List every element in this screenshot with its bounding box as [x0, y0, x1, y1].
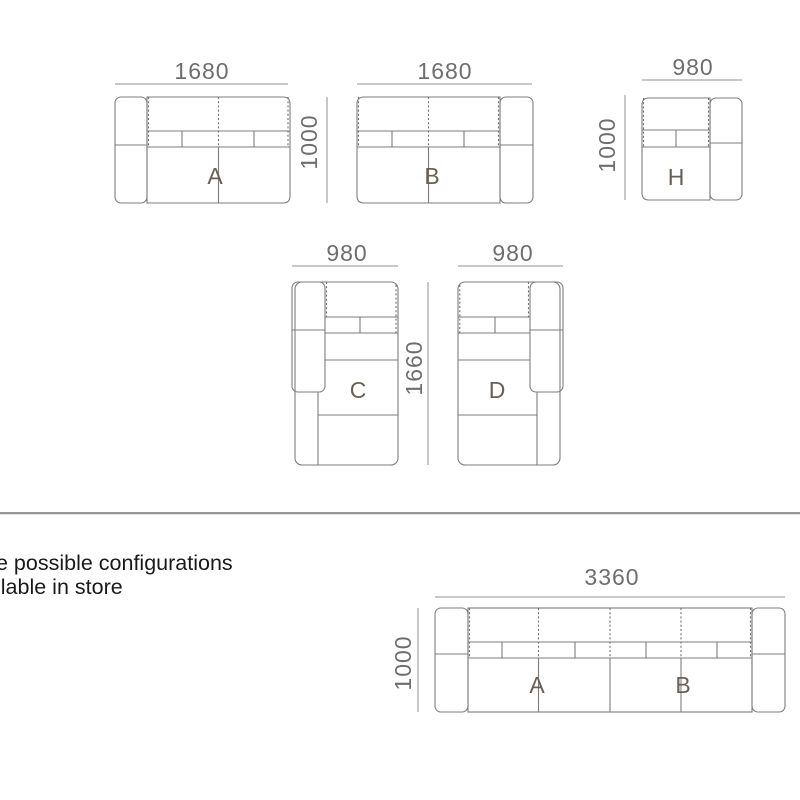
module-a-label: A [195, 163, 235, 189]
configuration-ab-sofa-outline [435, 608, 785, 712]
module-c-label: C [338, 377, 378, 403]
module-d-sofa-outline [458, 282, 563, 465]
sofa-body [458, 282, 560, 465]
module-c-sofa-outline [292, 282, 398, 465]
module-b-label: B [412, 163, 452, 189]
module-h-depth-dimension: 1000 [594, 85, 620, 205]
configuration-ab-seam-lines [470, 608, 751, 658]
module-h-width-dimension: 980 [633, 55, 753, 79]
configuration-ab-label-b: B [663, 672, 703, 698]
configuration-ab-diagram: 3360 1000 A B [388, 560, 800, 720]
module-b-width-dimension: 1680 [385, 59, 505, 83]
configuration-ab-width-dimension: 3360 [552, 565, 672, 589]
armrest-left [435, 608, 468, 712]
armrest [710, 98, 742, 200]
module-c-length-dimension: 1660 [401, 308, 427, 428]
sofa-body [295, 282, 398, 465]
configuration-ab-dimension-lines [418, 597, 785, 712]
caption-line-2: ilable in store [0, 575, 233, 599]
module-h-label: H [656, 164, 696, 190]
module-d-label: D [477, 377, 517, 403]
module-h-diagram: 980 1000 H [590, 40, 760, 210]
module-d-seam-lines [460, 282, 529, 333]
sofa-configuration-sheet: { "caption": { "line1": "e possible conf… [0, 0, 800, 800]
module-d-width-dimension: 980 [453, 241, 573, 265]
armrest [115, 97, 147, 203]
module-a-width-dimension: 1680 [142, 59, 262, 83]
module-c-diagram: 980 1660 C [278, 240, 438, 475]
section-divider [0, 512, 800, 515]
armrest [500, 97, 533, 203]
configuration-ab-label-a: A [517, 672, 557, 698]
module-c-seam-lines [327, 282, 397, 333]
module-d-drawing [445, 240, 575, 475]
caption-text: e possible configurations ilable in stor… [0, 551, 233, 599]
armrest [530, 282, 563, 392]
caption-line-1: e possible configurations [0, 551, 233, 575]
armrest-right [752, 608, 785, 712]
module-a-seam-lines [149, 97, 289, 147]
module-d-diagram: 980 D [445, 240, 575, 475]
module-b-diagram: 1680 B [340, 58, 580, 208]
armrest [292, 282, 325, 392]
module-a-depth-dimension: 1000 [296, 82, 322, 202]
module-a-diagram: 1680 1000 A [100, 58, 335, 208]
module-b-seam-lines [359, 97, 499, 147]
module-c-width-dimension: 980 [287, 241, 407, 265]
configuration-ab-depth-dimension: 1000 [390, 603, 416, 723]
